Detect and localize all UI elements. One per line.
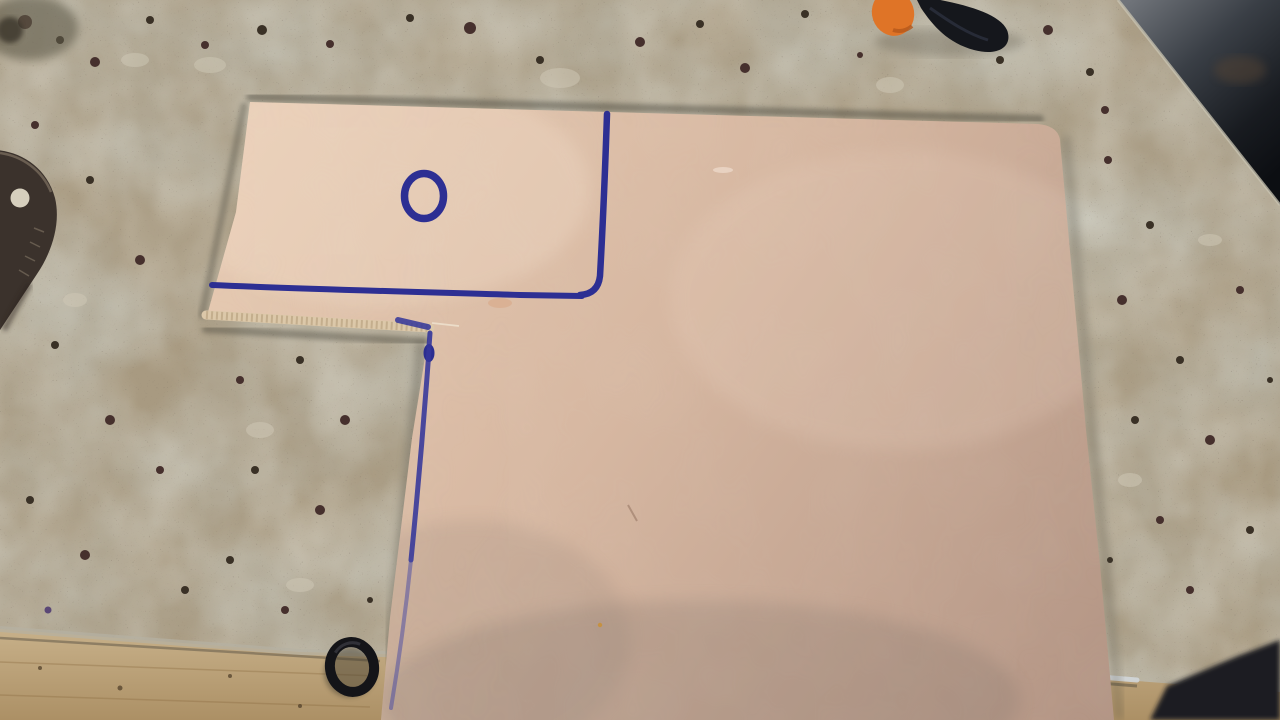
background-brown-smudge	[1214, 56, 1266, 84]
ink-dot-on-granite	[45, 607, 52, 614]
leather-stain	[488, 298, 512, 308]
leather-speck	[598, 623, 602, 627]
photo-scene	[0, 0, 1280, 720]
leather-scuff	[713, 167, 733, 173]
steel-rule-hole	[11, 189, 30, 208]
photo-svg	[0, 0, 1280, 720]
